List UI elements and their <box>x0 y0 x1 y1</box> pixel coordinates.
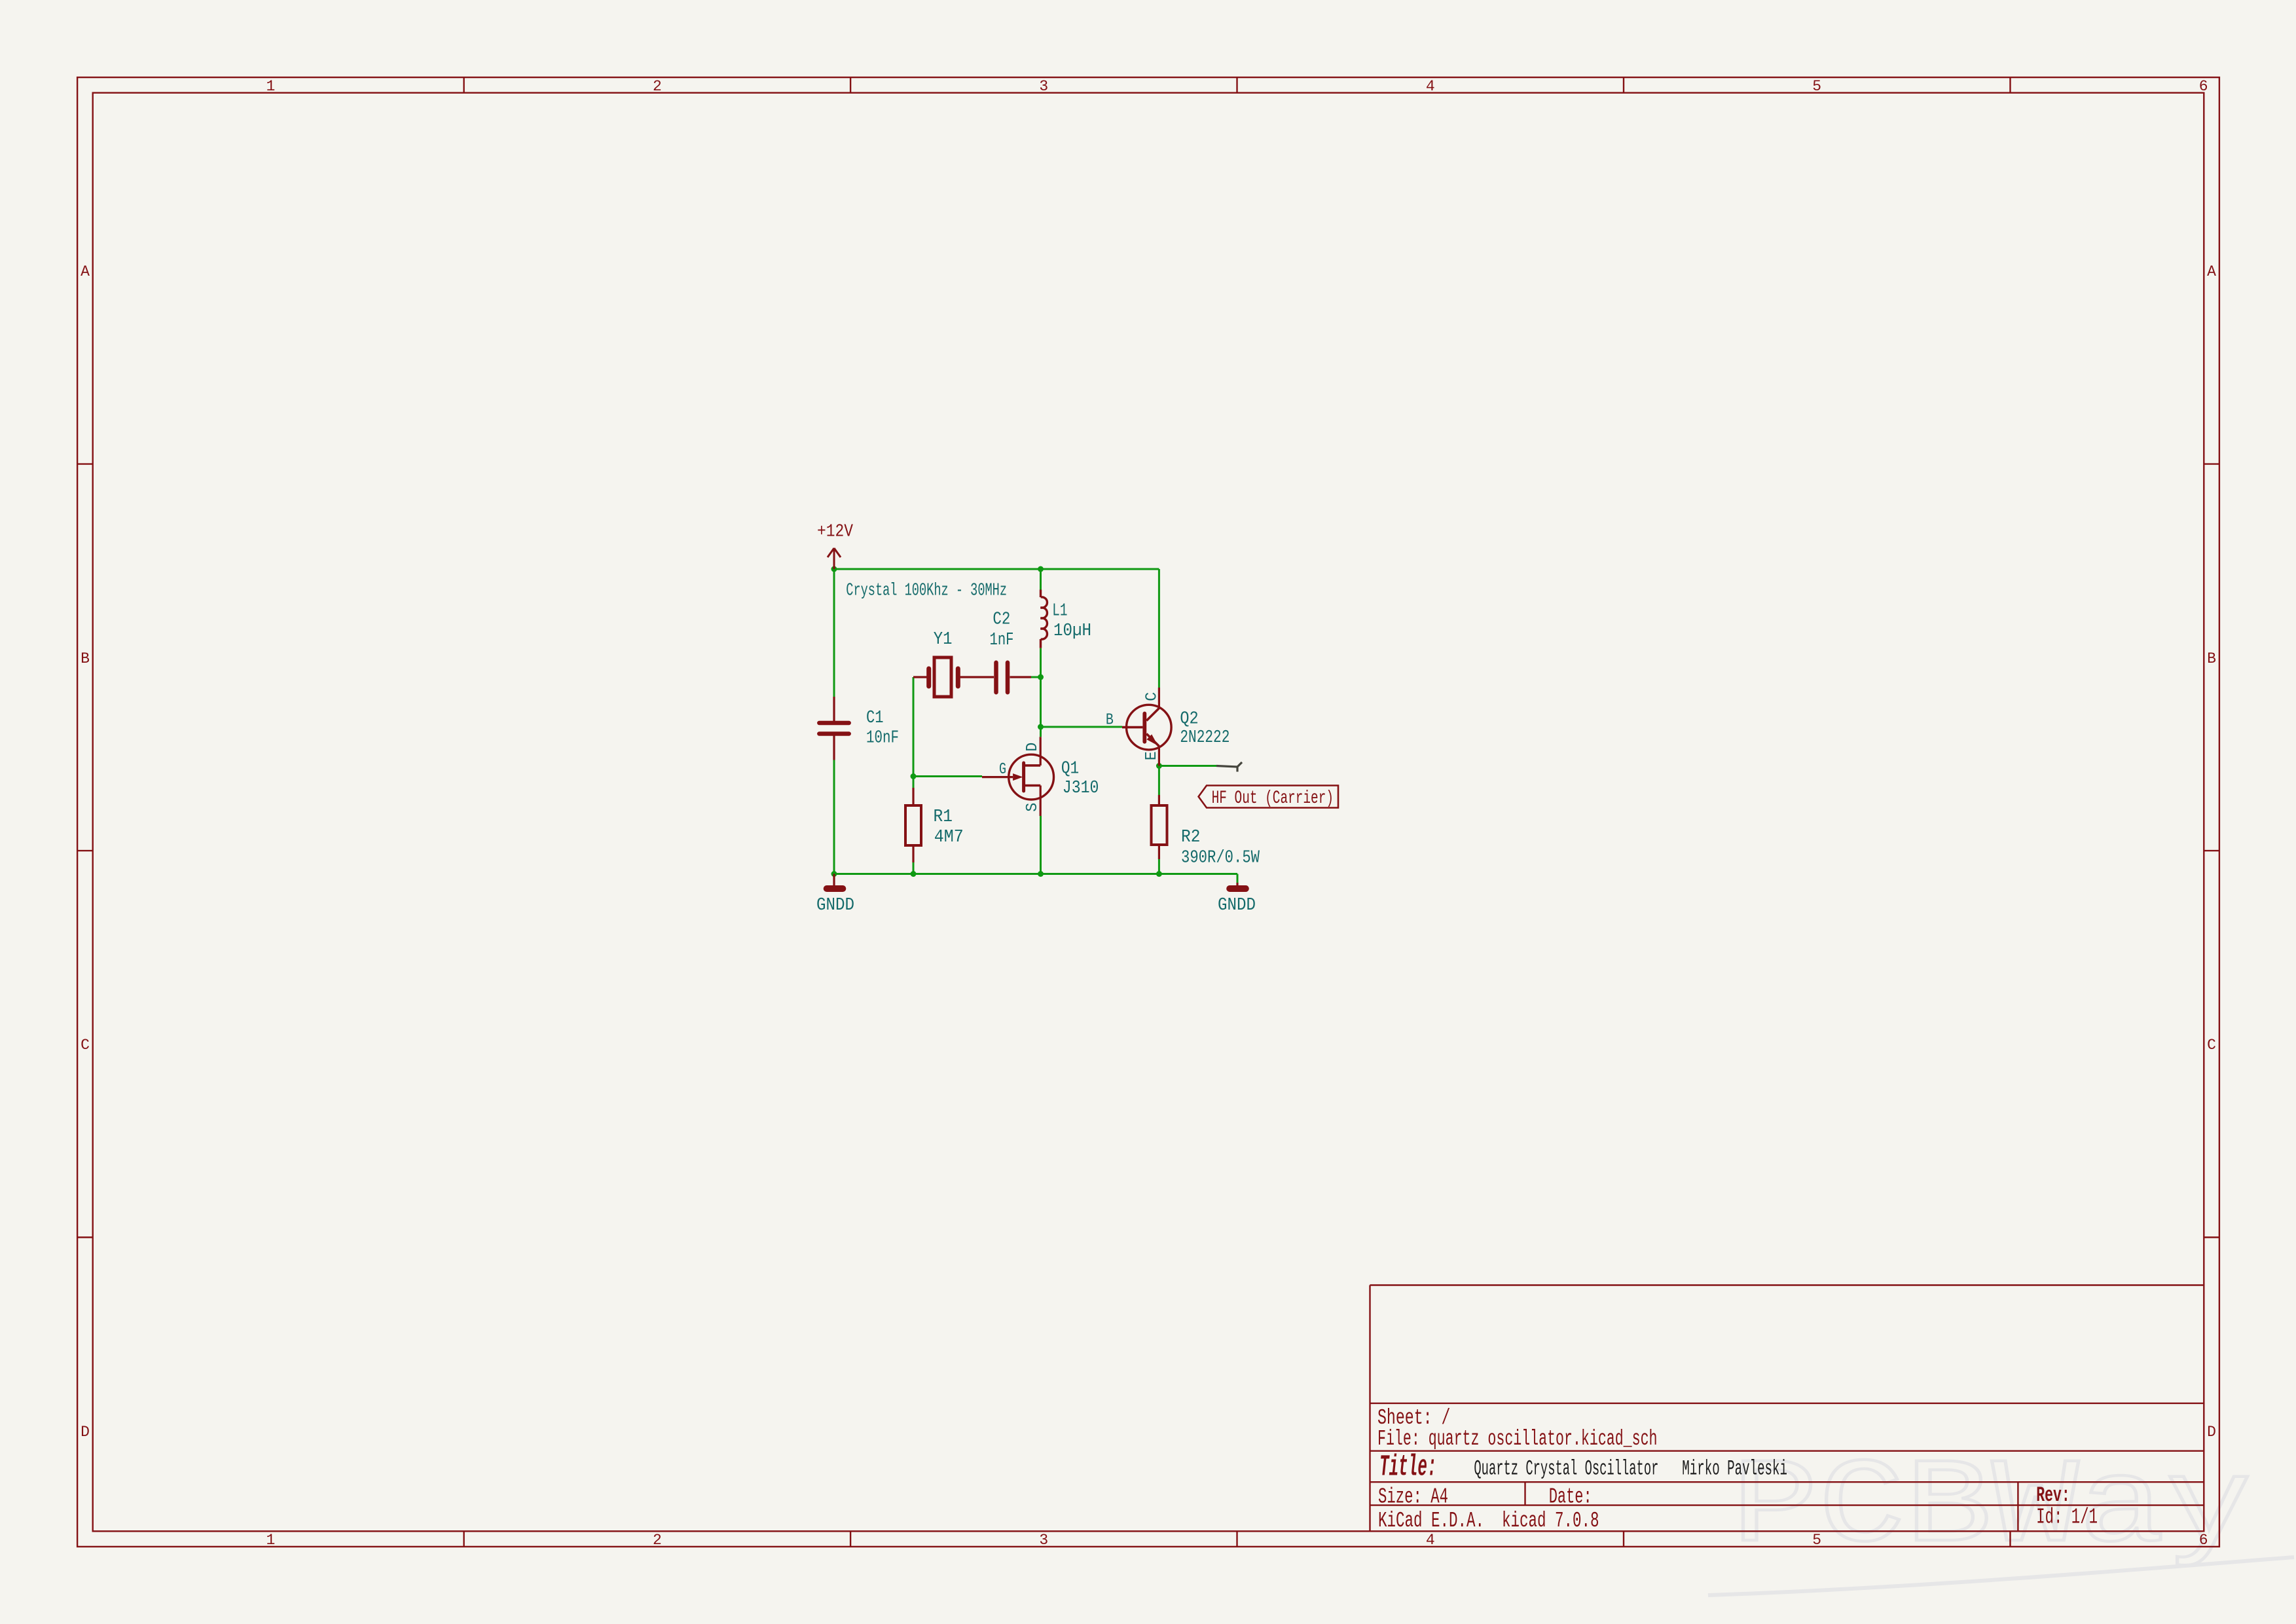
svg-text:3: 3 <box>1039 1532 1048 1549</box>
svg-text:5: 5 <box>1812 1532 1821 1549</box>
svg-text:HF Out (Carrier): HF Out (Carrier) <box>1212 788 1334 809</box>
svg-text:2: 2 <box>653 78 662 95</box>
svg-text:1: 1 <box>266 1532 275 1549</box>
svg-text:4: 4 <box>1426 78 1435 95</box>
svg-text:J310: J310 <box>1063 778 1099 798</box>
svg-text:C1: C1 <box>866 708 884 728</box>
svg-text:10µH: 10µH <box>1053 621 1091 640</box>
svg-text:1nF: 1nF <box>990 630 1014 650</box>
svg-text:File: quartz oscillator.kicad_: File: quartz oscillator.kicad_sch <box>1377 1427 1658 1451</box>
svg-text:GNDD: GNDD <box>1218 895 1256 915</box>
svg-text:Q1: Q1 <box>1061 758 1079 778</box>
svg-text:Rev:: Rev: <box>2036 1483 2070 1507</box>
svg-text:4M7: 4M7 <box>934 827 964 847</box>
svg-text:G: G <box>999 761 1006 779</box>
svg-text:2N2222: 2N2222 <box>1180 728 1230 747</box>
svg-text:C: C <box>1143 692 1161 701</box>
svg-text:Q2: Q2 <box>1180 709 1198 728</box>
svg-text:B: B <box>81 650 90 667</box>
svg-text:E: E <box>1143 751 1161 760</box>
svg-text:Date:: Date: <box>1549 1485 1592 1509</box>
svg-text:GNDD: GNDD <box>816 895 854 915</box>
svg-text:6: 6 <box>2199 78 2208 95</box>
svg-text:5: 5 <box>1812 78 1821 95</box>
svg-text:Size: A4: Size: A4 <box>1378 1485 1448 1509</box>
svg-text:Id: 1/1: Id: 1/1 <box>2036 1505 2098 1530</box>
svg-text:L1: L1 <box>1052 600 1067 620</box>
svg-text:PCBWay: PCBWay <box>1732 1441 2252 1577</box>
svg-text:R1: R1 <box>934 807 953 826</box>
svg-text:6: 6 <box>2199 1532 2208 1549</box>
svg-text:R2: R2 <box>1181 827 1200 847</box>
svg-text:A: A <box>81 263 90 280</box>
svg-text:C2: C2 <box>993 610 1010 629</box>
svg-text:Quartz Crystal Oscillator: Quartz Crystal Oscillator <box>1474 1457 1658 1481</box>
svg-text:Title:: Title: <box>1379 1451 1437 1485</box>
svg-text:4: 4 <box>1426 1532 1435 1549</box>
svg-text:Crystal 100Khz - 30MHz: Crystal 100Khz - 30MHz <box>846 581 1007 600</box>
svg-text:10nF: 10nF <box>866 728 899 748</box>
svg-text:S: S <box>1024 803 1042 812</box>
svg-text:B: B <box>1106 711 1114 729</box>
svg-text:C: C <box>2207 1037 2216 1054</box>
svg-text:B: B <box>2207 650 2216 667</box>
svg-text:D: D <box>81 1424 90 1441</box>
svg-text:Y1: Y1 <box>934 629 953 649</box>
svg-text:A: A <box>2207 263 2216 280</box>
svg-text:390R/0.5W: 390R/0.5W <box>1181 848 1260 868</box>
svg-text:1: 1 <box>266 78 275 95</box>
svg-text:D: D <box>2207 1424 2216 1441</box>
svg-text:Mirko Pavleski: Mirko Pavleski <box>1682 1457 1787 1481</box>
svg-text:D: D <box>1024 743 1042 752</box>
svg-text:C: C <box>81 1037 90 1054</box>
svg-text:3: 3 <box>1039 78 1048 95</box>
svg-text:2: 2 <box>653 1532 662 1549</box>
svg-text:KiCad E.D.A. kicad 7.0.8: KiCad E.D.A. kicad 7.0.8 <box>1378 1509 1599 1533</box>
svg-text:+12V: +12V <box>817 522 853 542</box>
